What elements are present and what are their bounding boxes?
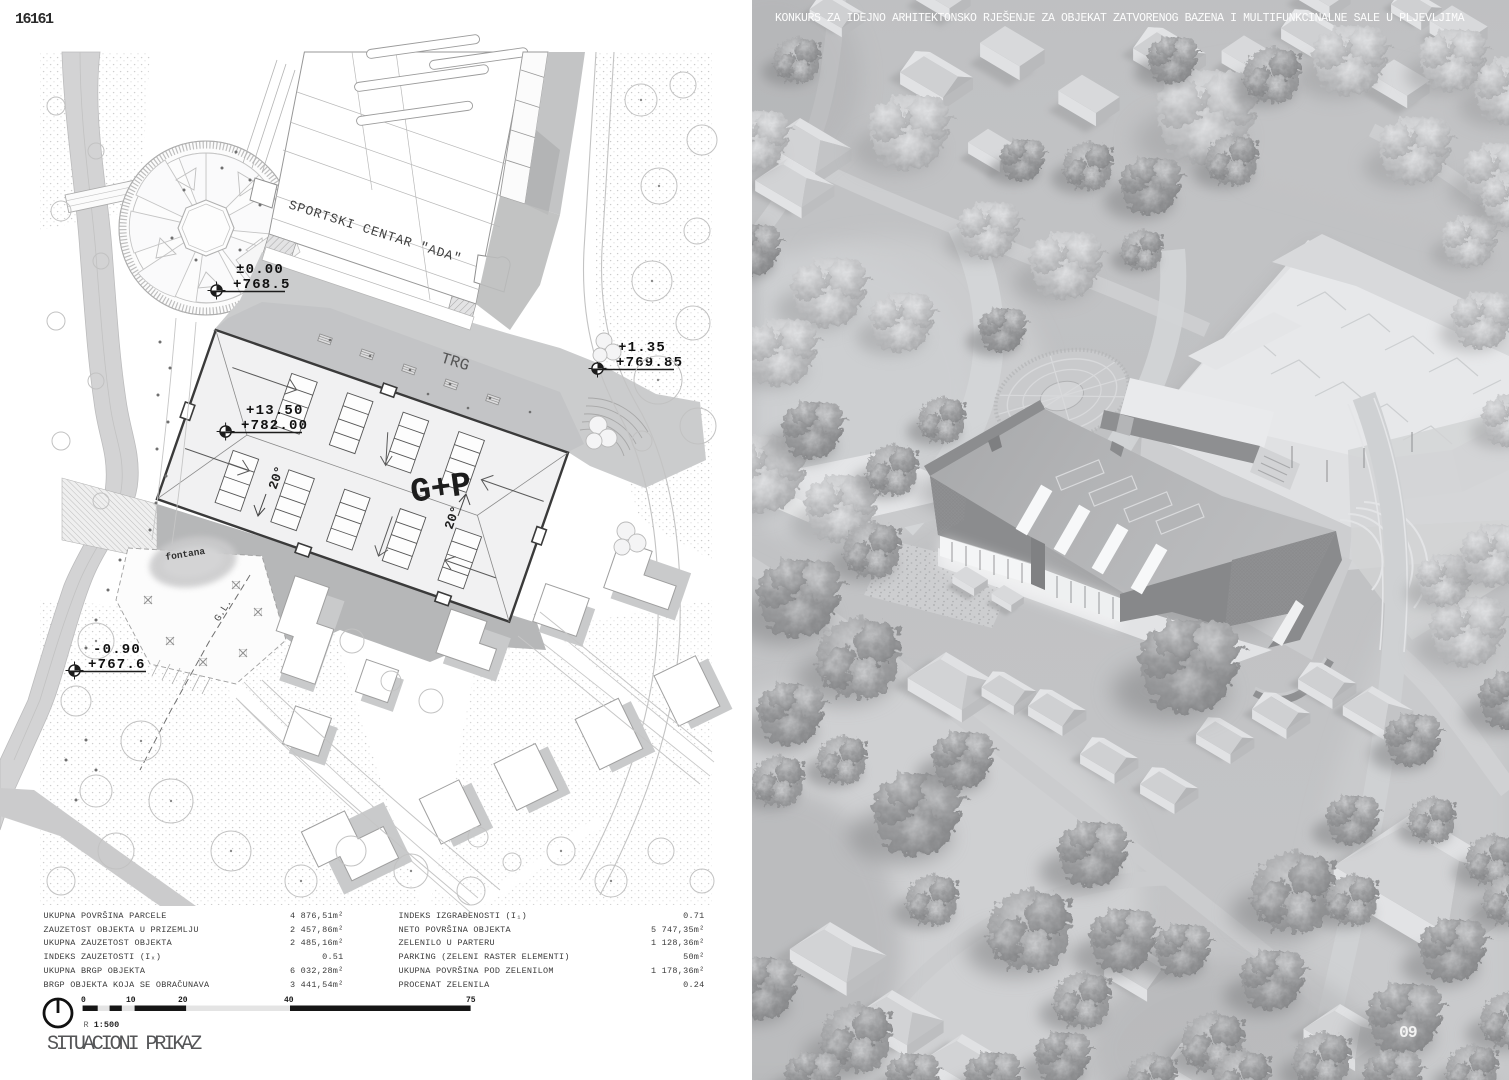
svg-text:75: 75 xyxy=(466,996,476,1005)
svg-text:+1.35: +1.35 xyxy=(618,340,666,356)
svg-text:+782.00: +782.00 xyxy=(241,418,308,434)
svg-text:+13.50: +13.50 xyxy=(246,403,304,419)
svg-text:-0.90: -0.90 xyxy=(93,642,141,658)
svg-text:40: 40 xyxy=(284,996,294,1005)
svg-text:+768.5: +768.5 xyxy=(233,277,291,293)
svg-text:10: 10 xyxy=(126,996,136,1005)
svg-text:0: 0 xyxy=(81,996,86,1005)
svg-text:±0.00: ±0.00 xyxy=(236,262,284,278)
svg-text:20: 20 xyxy=(178,996,188,1005)
